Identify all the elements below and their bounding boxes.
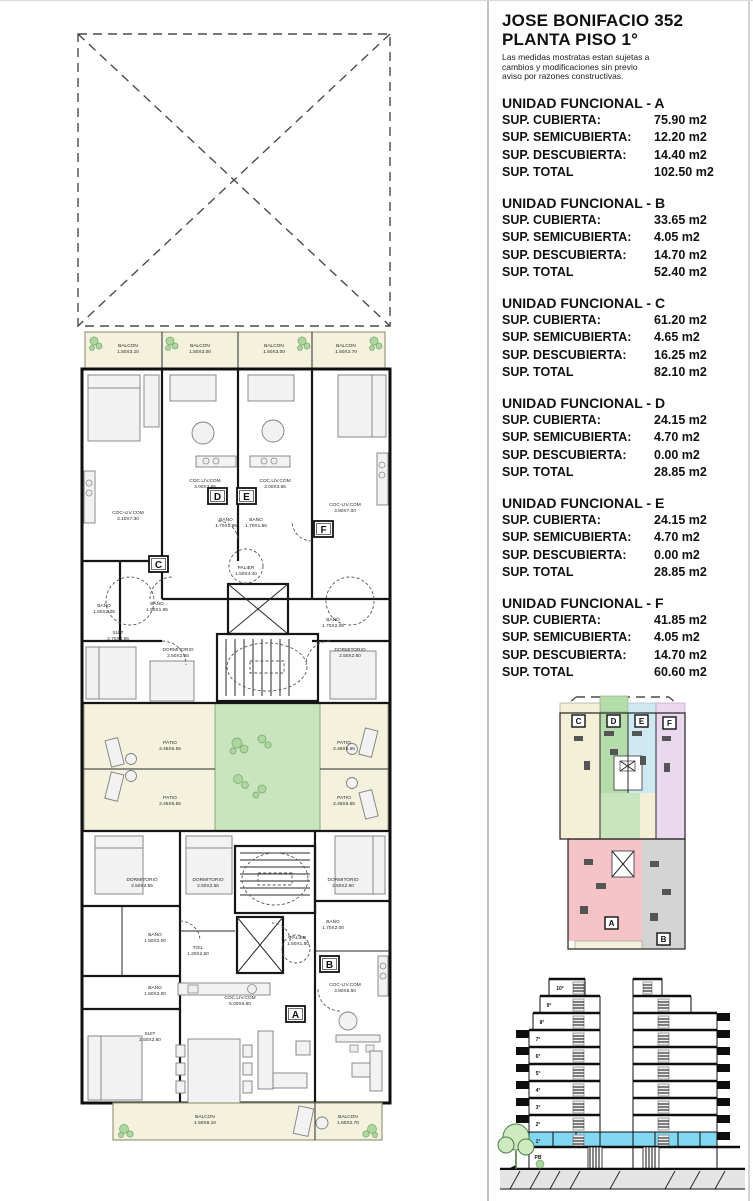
- svg-text:3°: 3°: [536, 1105, 541, 1111]
- sup-cubierta-row: SUP. CUBIERTA:61.20 m2: [502, 312, 751, 330]
- unit-block-b: UNIDAD FUNCIONAL - B SUP. CUBIERTA:33.65…: [502, 195, 751, 282]
- sup-cubierta-value: 24.15 m2: [654, 412, 707, 430]
- svg-text:B: B: [326, 960, 333, 971]
- key-plan: C D E F A B: [560, 696, 685, 949]
- sup-semicubierta-value: 12.20 m2: [654, 129, 707, 147]
- sup-descubierta-row: SUP. DESCUBIERTA:16.25 m2: [502, 347, 751, 365]
- key-marker-d: D: [607, 715, 620, 727]
- unit-title: UNIDAD FUNCIONAL - D: [502, 395, 751, 411]
- sup-total-value: 60.60 m2: [654, 664, 707, 682]
- svg-text:1°: 1°: [536, 1139, 541, 1145]
- sup-cubierta-value: 33.65 m2: [654, 212, 707, 230]
- sup-descubierta-row: SUP. DESCUBIERTA:0.00 m2: [502, 447, 751, 465]
- unit-marker-d: D: [208, 488, 227, 504]
- svg-text:E: E: [243, 492, 250, 503]
- unit-marker-e: E: [237, 488, 256, 504]
- svg-text:10°: 10°: [556, 986, 564, 992]
- patio-band: PATIO2.45X5.55 PATIO2.45X5.65 PATIO2.45X…: [84, 703, 388, 831]
- sup-cubierta-value: 61.20 m2: [654, 312, 707, 330]
- svg-text:F: F: [320, 525, 326, 536]
- sup-cubierta-row: SUP. CUBIERTA:24.15 m2: [502, 412, 751, 430]
- section-right-balconies: [717, 1013, 730, 1140]
- unit-block-d: UNIDAD FUNCIONAL - D SUP. CUBIERTA:24.15…: [502, 395, 751, 482]
- sup-total-row: SUP. TOTAL82.10 m2: [502, 364, 751, 382]
- svg-text:BAÑO1.50X2.00: BAÑO1.50X2.00: [144, 931, 166, 944]
- building-section: 10° 9° 8° 7° 6° 5° 4° 3° 2° 1° PB: [498, 979, 745, 1189]
- sup-semicubierta-row: SUP. SEMICUBIERTA:4.70 m2: [502, 429, 751, 447]
- sheet-title-line1: JOSE BONIFACIO 352: [502, 11, 751, 30]
- sup-total-row: SUP. TOTAL60.60 m2: [502, 664, 751, 682]
- sup-descubierta-row: SUP. DESCUBIERTA:14.40 m2: [502, 147, 751, 165]
- sup-descubierta-row: SUP. DESCUBIERTA:14.70 m2: [502, 247, 751, 265]
- unit-marker-b: B: [320, 956, 339, 972]
- svg-text:TOIL1.20X2.50: TOIL1.20X2.50: [187, 945, 209, 957]
- sup-total-value: 28.85 m2: [654, 464, 707, 482]
- sup-cubierta-value: 24.15 m2: [654, 512, 707, 530]
- sup-semicubierta-value: 4.05 m2: [654, 629, 700, 647]
- key-marker-a: A: [605, 917, 618, 929]
- sup-descubierta-value: 0.00 m2: [654, 547, 700, 565]
- svg-text:BAÑO1.50X2.00: BAÑO1.50X2.00: [144, 984, 166, 997]
- lot-outline-dashed: [78, 34, 390, 326]
- sup-semicubierta-row: SUP. SEMICUBIERTA:4.05 m2: [502, 629, 751, 647]
- unit-marker-f: F: [314, 521, 333, 537]
- svg-text:PALIER1.50X4.40: PALIER1.50X4.40: [235, 565, 257, 577]
- svg-text:9°: 9°: [547, 1003, 552, 1009]
- unit-marker-a: A: [286, 1006, 305, 1022]
- svg-text:F: F: [667, 719, 672, 728]
- svg-text:SUIT2.70X4.55: SUIT2.70X4.55: [107, 630, 129, 642]
- sup-total-value: 102.50 m2: [654, 164, 714, 182]
- svg-text:A: A: [609, 919, 615, 928]
- svg-text:BAÑO1.70X1.85: BAÑO1.70X1.85: [215, 516, 237, 529]
- balcony-strip-top: BALCON1.50X3.10 BALCON1.50X3.00 BALCON1.…: [85, 332, 385, 369]
- svg-text:COC-LIV.COM3.80X7.00: COC-LIV.COM3.80X7.00: [329, 502, 361, 514]
- sup-descubierta-value: 0.00 m2: [654, 447, 700, 465]
- unit-title: UNIDAD FUNCIONAL - B: [502, 195, 751, 211]
- architectural-sheet: BALCON1.50X3.10 BALCON1.50X3.00 BALCON1.…: [0, 0, 753, 1201]
- sup-semicubierta-value: 4.70 m2: [654, 529, 700, 547]
- unit-block-a: UNIDAD FUNCIONAL - A SUP. CUBIERTA:75.90…: [502, 95, 751, 182]
- stair-core-upper: [217, 634, 318, 701]
- sup-total-value: 82.10 m2: [654, 364, 707, 382]
- sup-total-row: SUP. TOTAL28.85 m2: [502, 464, 751, 482]
- sup-semicubierta-row: SUP. SEMICUBIERTA:12.20 m2: [502, 129, 751, 147]
- sup-descubierta-row: SUP. DESCUBIERTA:0.00 m2: [502, 547, 751, 565]
- svg-text:BAÑO1.50X2.05: BAÑO1.50X2.05: [93, 602, 115, 615]
- sup-total-value: 52.40 m2: [654, 264, 707, 282]
- svg-text:2°: 2°: [536, 1122, 541, 1128]
- svg-text:8°: 8°: [540, 1020, 545, 1026]
- sup-cubierta-row: SUP. CUBIERTA:41.85 m2: [502, 612, 751, 630]
- svg-text:C: C: [576, 717, 582, 726]
- sup-total-row: SUP. TOTAL102.50 m2: [502, 164, 751, 182]
- sup-descubierta-row: SUP. DESCUBIERTA:14.70 m2: [502, 647, 751, 665]
- svg-text:E: E: [639, 717, 645, 726]
- svg-text:DORMITORIO2.50X2.55: DORMITORIO2.50X2.55: [162, 647, 193, 659]
- sup-total-row: SUP. TOTAL28.85 m2: [502, 564, 751, 582]
- sup-cubierta-value: 75.90 m2: [654, 112, 707, 130]
- sup-cubierta-row: SUP. CUBIERTA:24.15 m2: [502, 512, 751, 530]
- key-marker-b: B: [657, 933, 670, 945]
- svg-text:A: A: [292, 1010, 299, 1021]
- sup-semicubierta-value: 4.05 m2: [654, 229, 700, 247]
- unit-block-e: UNIDAD FUNCIONAL - E SUP. CUBIERTA:24.15…: [502, 495, 751, 582]
- sup-cubierta-row: SUP. CUBIERTA:75.90 m2: [502, 112, 751, 130]
- sup-total-value: 28.85 m2: [654, 564, 707, 582]
- disclaimer-note: Las medidas mostratas estan sujetas a ca…: [502, 53, 654, 82]
- section-ground: [500, 1147, 745, 1189]
- svg-text:COC-LIV.COM3.10X7.30: COC-LIV.COM3.10X7.30: [112, 510, 144, 522]
- stair-core-lower: [235, 846, 315, 913]
- svg-text:7°: 7°: [536, 1037, 541, 1043]
- balcony-strip-bottom: BALCON1.50X8.10 BALCON1.50X2.70: [113, 1103, 382, 1140]
- elevator-lower: [237, 917, 283, 973]
- svg-text:COC-LIV.COM3.80X5.50: COC-LIV.COM3.80X5.50: [329, 982, 361, 994]
- unit-title: UNIDAD FUNCIONAL - A: [502, 95, 751, 111]
- svg-text:BAÑO1.70X2.05: BAÑO1.70X2.05: [322, 616, 344, 629]
- unit-marker-c: C: [149, 556, 168, 572]
- svg-text:C: C: [155, 560, 162, 571]
- svg-text:5°: 5°: [536, 1071, 541, 1077]
- sup-cubierta-value: 41.85 m2: [654, 612, 707, 630]
- unit-block-f: UNIDAD FUNCIONAL - F SUP. CUBIERTA:41.85…: [502, 595, 751, 682]
- floor-plan: BALCON1.50X3.10 BALCON1.50X3.00 BALCON1.…: [78, 34, 390, 1140]
- key-marker-f: F: [663, 717, 676, 729]
- svg-text:D: D: [611, 717, 617, 726]
- unit-title: UNIDAD FUNCIONAL - C: [502, 295, 751, 311]
- sup-descubierta-value: 14.70 m2: [654, 247, 707, 265]
- key-marker-c: C: [572, 715, 585, 727]
- info-panel: JOSE BONIFACIO 352 PLANTA PISO 1° Las me…: [489, 1, 751, 701]
- sup-total-row: SUP. TOTAL52.40 m2: [502, 264, 751, 282]
- sheet-title-line2: PLANTA PISO 1°: [502, 30, 751, 49]
- svg-text:COC.LIV.COM5.00X5.80: COC.LIV.COM5.00X5.80: [224, 995, 255, 1007]
- svg-text:BAÑO1.50X1.85: BAÑO1.50X1.85: [146, 600, 168, 613]
- svg-text:6°: 6°: [536, 1054, 541, 1060]
- svg-text:4°: 4°: [536, 1088, 541, 1094]
- svg-text:BAÑO1.70X1.55: BAÑO1.70X1.55: [245, 516, 267, 529]
- svg-text:B: B: [661, 935, 667, 944]
- unit-block-c: UNIDAD FUNCIONAL - C SUP. CUBIERTA:61.20…: [502, 295, 751, 382]
- sup-semicubierta-row: SUP. SEMICUBIERTA:4.05 m2: [502, 229, 751, 247]
- sup-semicubierta-value: 4.65 m2: [654, 329, 700, 347]
- sup-descubierta-value: 14.70 m2: [654, 647, 707, 665]
- section-left-balconies: [516, 1030, 529, 1140]
- key-marker-e: E: [635, 715, 648, 727]
- sup-cubierta-row: SUP. CUBIERTA:33.65 m2: [502, 212, 751, 230]
- svg-text:COC.LIV.COM3.00X3.65: COC.LIV.COM3.00X3.65: [259, 478, 290, 490]
- svg-text:BAÑO1.70X2.00: BAÑO1.70X2.00: [322, 918, 344, 931]
- svg-text:D: D: [214, 492, 221, 503]
- sup-semicubierta-row: SUP. SEMICUBIERTA:4.70 m2: [502, 529, 751, 547]
- sup-semicubierta-value: 4.70 m2: [654, 429, 700, 447]
- sup-semicubierta-row: SUP. SEMICUBIERTA:4.65 m2: [502, 329, 751, 347]
- sup-descubierta-value: 14.40 m2: [654, 147, 707, 165]
- unit-title: UNIDAD FUNCIONAL - F: [502, 595, 751, 611]
- unit-title: UNIDAD FUNCIONAL - E: [502, 495, 751, 511]
- elevator-upper: [228, 584, 288, 634]
- sup-descubierta-value: 16.25 m2: [654, 347, 707, 365]
